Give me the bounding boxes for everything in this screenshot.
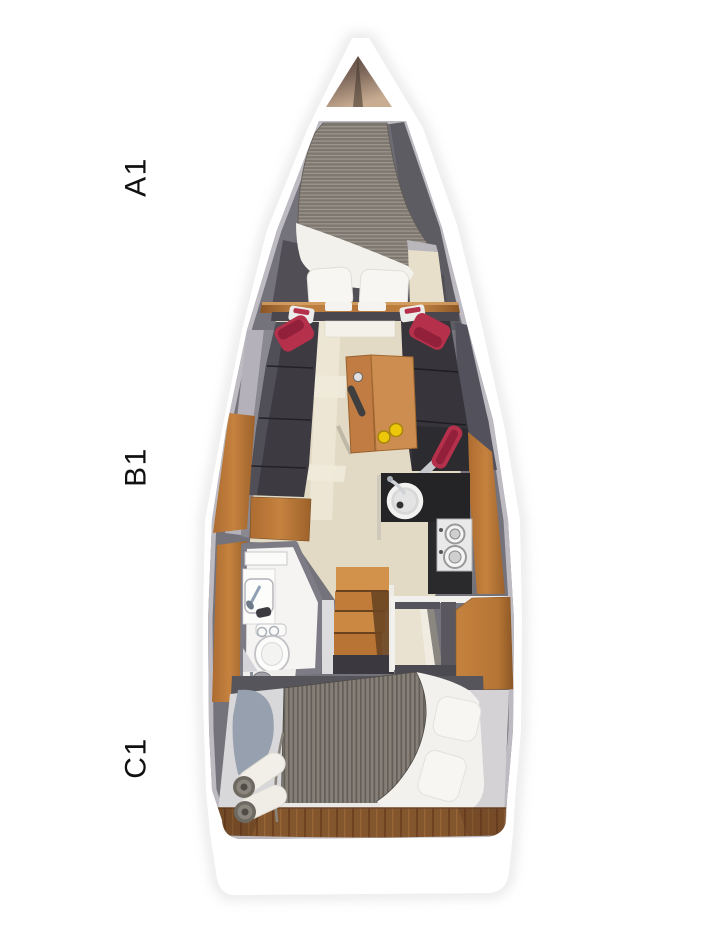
svg-text:A1: A1: [120, 157, 153, 197]
svg-text:B1: B1: [120, 447, 153, 487]
svg-text:C1: C1: [120, 737, 153, 778]
